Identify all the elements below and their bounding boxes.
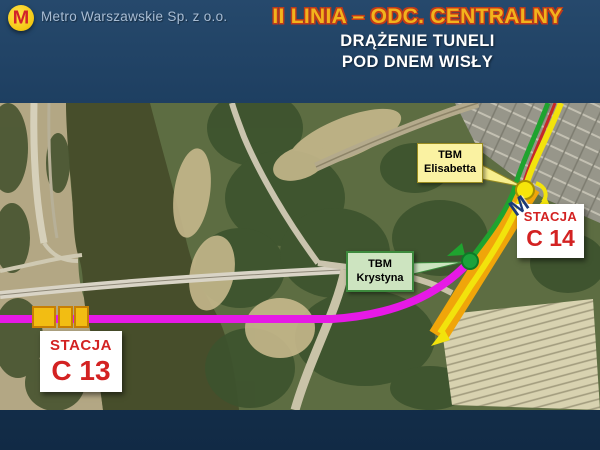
tbm-elisabetta-line2: Elisabetta <box>418 162 482 176</box>
presentation-slide: M Metro Warszawskie Sp. z o.o. II LINIA … <box>0 0 600 450</box>
metro-logo-letter: M <box>13 9 30 27</box>
slide-subtitle-line1: DRĄŻENIE TUNELI <box>235 32 600 51</box>
metro-logo-icon: M <box>8 5 34 31</box>
tbm-elisabetta-line1: TBM <box>418 148 482 162</box>
station-c13-label: STACJA C 13 <box>40 331 122 392</box>
slide-subtitle-line2: POD DNEM WISŁY <box>235 53 600 72</box>
tbm-krystyna-line2: Krystyna <box>348 271 412 285</box>
company-name: Metro Warszawskie Sp. z o.o. <box>41 9 227 24</box>
station-c13-code: C 13 <box>40 355 122 387</box>
station-c13-name: STACJA <box>40 337 122 354</box>
tbm-krystyna-line1: TBM <box>348 257 412 271</box>
station-c13-boxes <box>33 307 88 327</box>
station-c14-code: C 14 <box>517 225 584 252</box>
tbm-elisabetta-callout: TBM Elisabetta <box>417 143 483 183</box>
market-rows-area <box>440 299 600 410</box>
slide-title: II LINIA – ODC. CENTRALNY <box>235 5 600 29</box>
tbm-krystyna-marker <box>462 253 478 269</box>
aerial-map: TBM Elisabetta TBM Krystyna STACJA C 13 … <box>0 103 600 410</box>
tbm-krystyna-callout: TBM Krystyna <box>346 251 414 292</box>
